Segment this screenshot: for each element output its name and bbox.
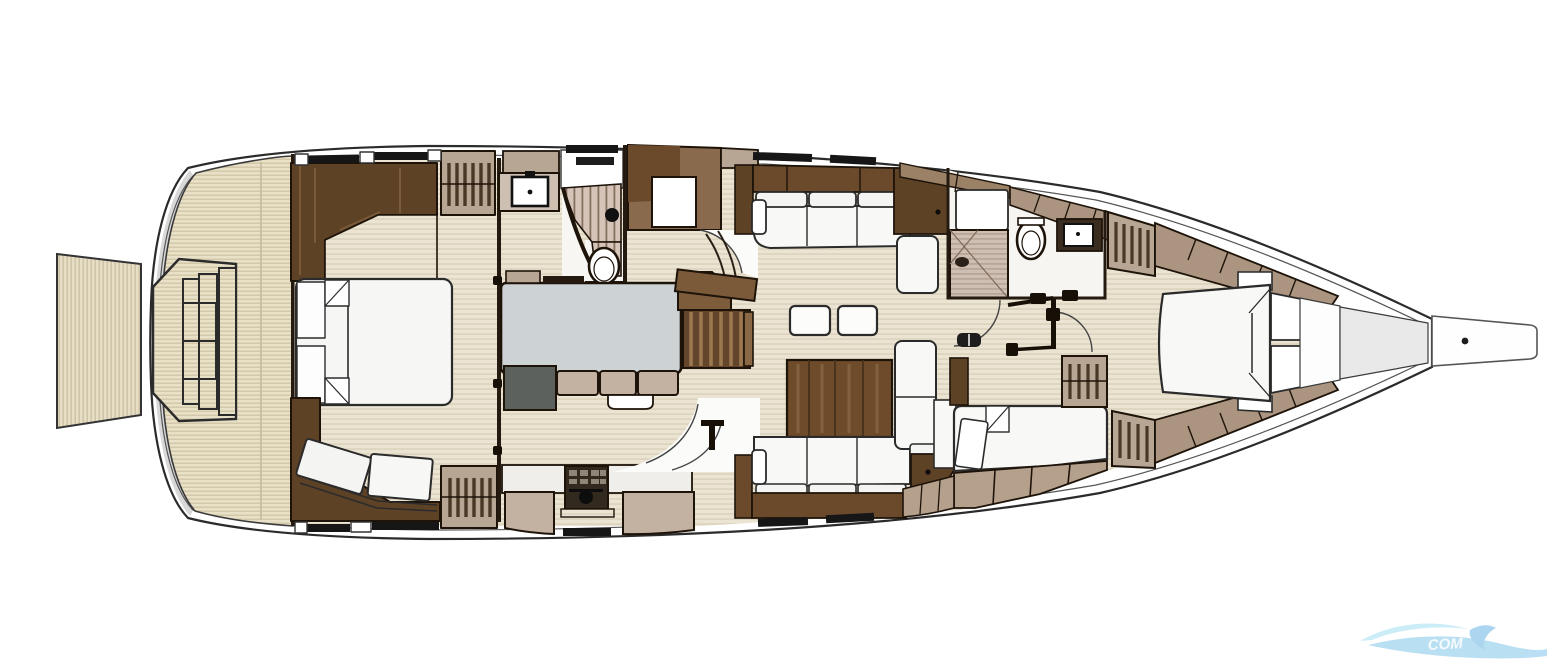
svg-text:COM: COM xyxy=(1427,635,1463,654)
